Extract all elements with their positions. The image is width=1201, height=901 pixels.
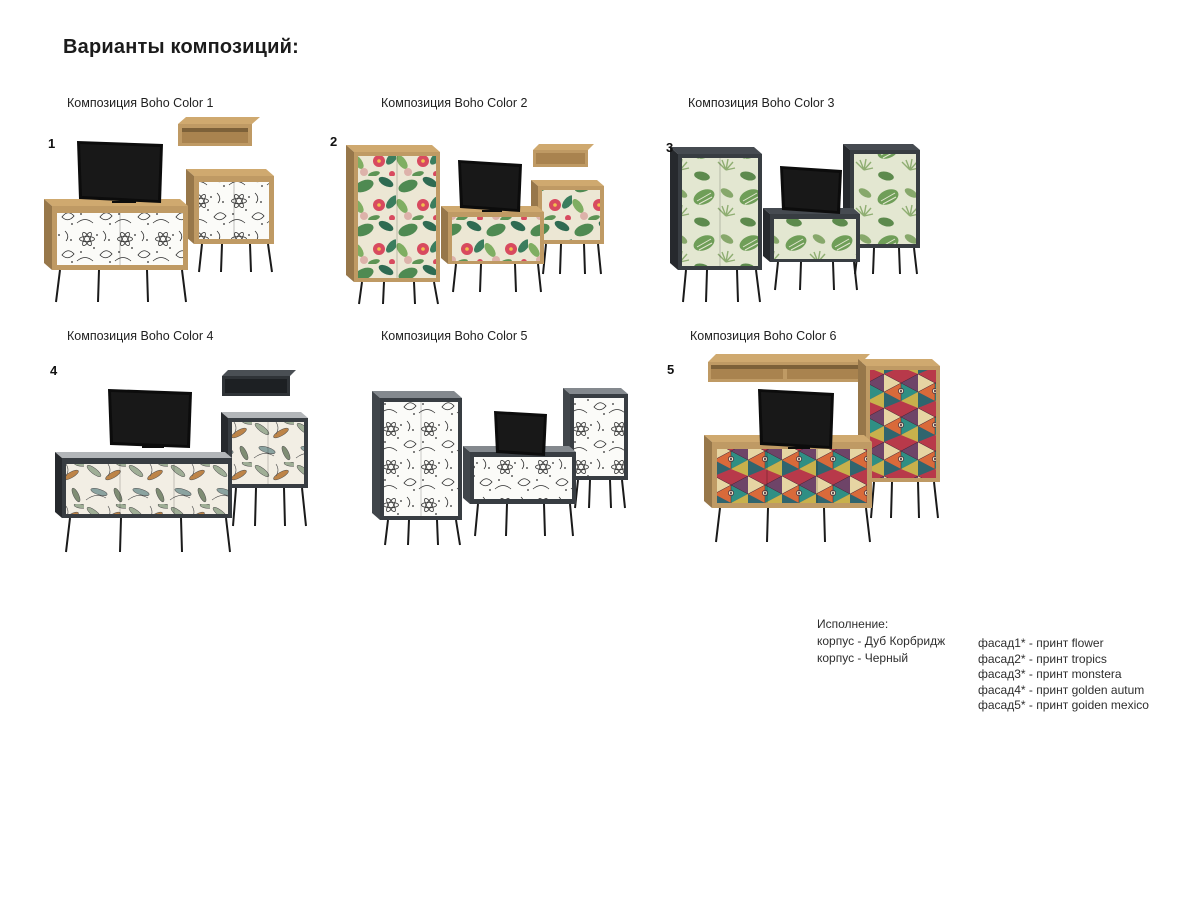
page-title: Варианты композиций: <box>63 36 299 59</box>
legs <box>385 520 460 545</box>
legs <box>56 270 186 302</box>
wall-shelf <box>222 370 296 396</box>
legend-facades: фасад1* - принт flower фасад2* - принт t… <box>978 636 1149 714</box>
sideboard <box>55 452 232 552</box>
tv <box>458 160 522 212</box>
legs <box>871 482 938 518</box>
wall-shelf-long <box>708 354 870 382</box>
legs <box>855 248 917 274</box>
legend-korpus-line-1: корпус - Дуб Корбридж <box>817 633 945 650</box>
composition-3-number: 3 <box>666 140 673 155</box>
sideboard <box>463 446 576 536</box>
compositions-graphic <box>0 0 1201 901</box>
legs <box>475 504 573 536</box>
composition-4-caption: Композиция Boho Color 4 <box>67 329 213 343</box>
legs <box>359 282 438 304</box>
legend-facade-line-2: фасад2* - принт tropics <box>978 652 1149 668</box>
legend-korpus-line-2: корпус - Черный <box>817 650 945 667</box>
sideboard <box>441 206 544 292</box>
tv <box>758 389 834 449</box>
composition-6 <box>704 354 940 542</box>
legend-title: Исполнение: <box>817 616 945 633</box>
legs <box>66 518 230 552</box>
composition-4 <box>55 370 308 552</box>
cabinet-tall-left <box>372 391 462 545</box>
sideboard <box>44 199 188 302</box>
composition-4-number: 4 <box>50 363 57 378</box>
legs <box>683 270 760 302</box>
legs <box>543 244 601 274</box>
composition-2-caption: Композиция Boho Color 2 <box>381 96 527 110</box>
sideboard <box>763 208 860 290</box>
wall-shelf <box>178 117 260 146</box>
composition-2-number: 2 <box>330 134 337 149</box>
cabinet-tall-left <box>670 147 762 302</box>
composition-2 <box>346 144 604 304</box>
legend-facade-line-5: фасад5* - принт goiden mexico <box>978 698 1149 714</box>
legs <box>199 244 272 272</box>
composition-6-number: 5 <box>667 362 674 377</box>
composition-3 <box>670 144 920 302</box>
legs <box>775 262 857 290</box>
composition-1-number: 1 <box>48 136 55 151</box>
legs <box>453 264 541 292</box>
legend-facade-line-4: фасад4* - принт golden autum <box>978 683 1149 699</box>
composition-5 <box>372 388 628 545</box>
cabinet-tall <box>186 169 274 272</box>
legend-facade-line-3: фасад3* - принт monstera <box>978 667 1149 683</box>
tv <box>108 389 192 448</box>
legs <box>716 508 870 542</box>
wall-shelf <box>533 144 594 167</box>
composition-6-caption: Композиция Boho Color 6 <box>690 329 836 343</box>
tv <box>780 166 842 214</box>
sideboard <box>704 435 872 542</box>
legs <box>575 480 625 508</box>
composition-1 <box>44 117 274 302</box>
tv <box>77 141 163 203</box>
cabinet-small <box>221 412 308 526</box>
catalog-page: Варианты композиций: Композиция Boho Col… <box>0 0 1201 901</box>
tv <box>494 411 547 456</box>
legend-facade-line-1: фасад1* - принт flower <box>978 636 1149 652</box>
legs <box>233 488 306 526</box>
composition-1-caption: Композиция Boho Color 1 <box>67 96 213 110</box>
legend-korpus: Исполнение: корпус - Дуб Корбридж корпус… <box>817 616 945 667</box>
composition-3-caption: Композиция Boho Color 3 <box>688 96 834 110</box>
cabinet-tall <box>346 145 440 304</box>
composition-5-caption: Композиция Boho Color 5 <box>381 329 527 343</box>
